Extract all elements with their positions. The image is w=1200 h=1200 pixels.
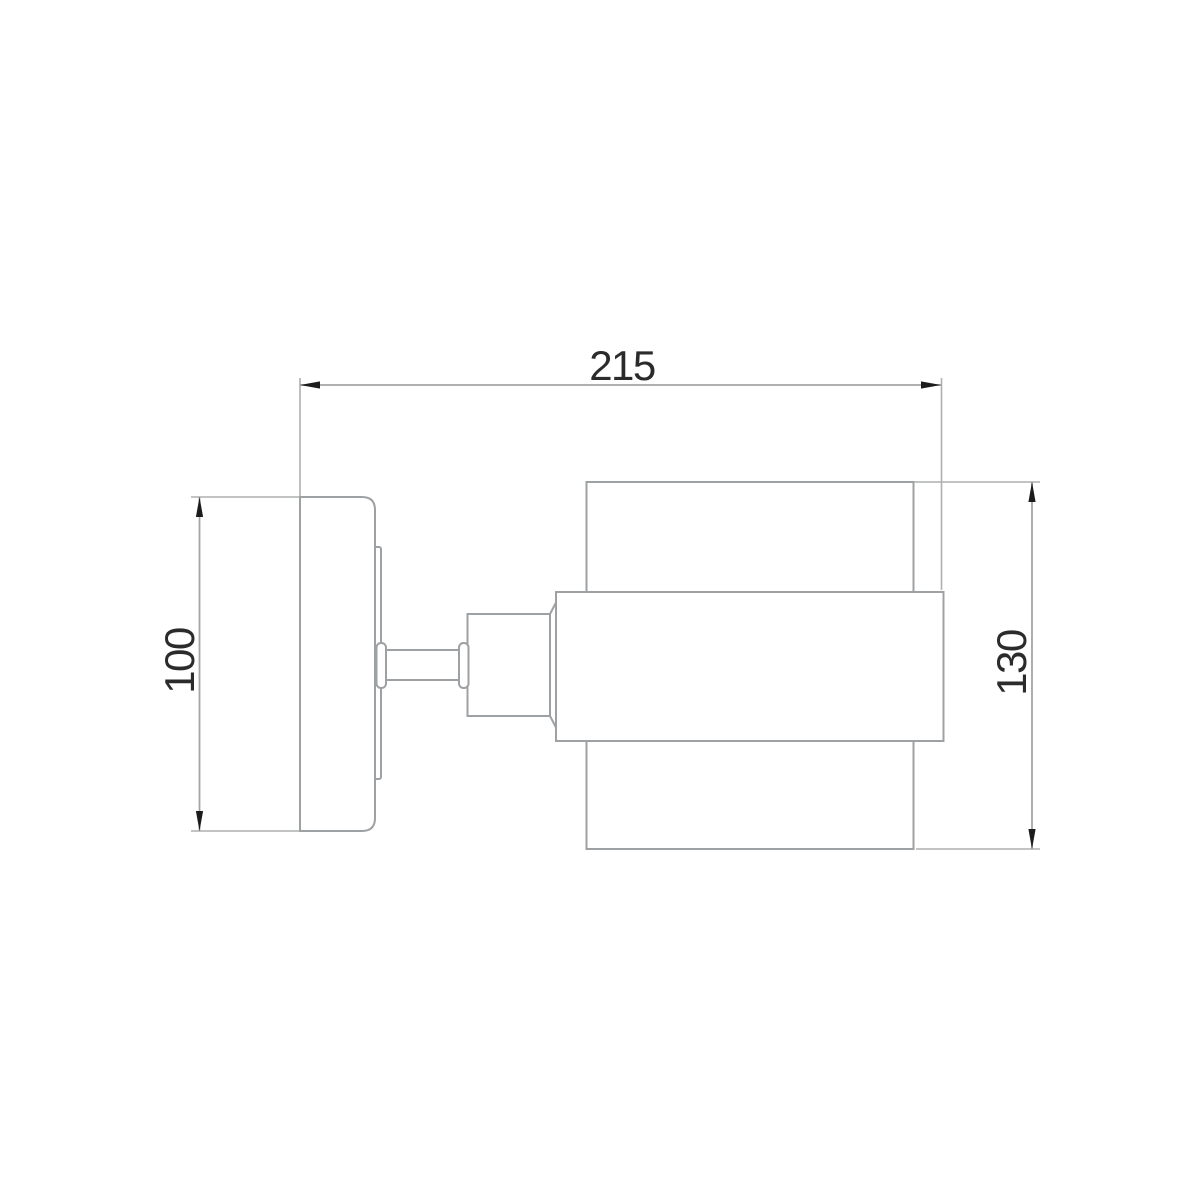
dimension-drawing: 215 100 130 [0,0,1200,1200]
arrowhead-right [921,381,941,388]
arrowhead-bottom [1028,829,1035,849]
socket-housing-outline [468,614,551,716]
dimension-label-overall-depth: 215 [589,342,655,389]
arrowhead-top [196,497,203,517]
wall-plate-outline [300,497,375,831]
dimension-label-shade-height: 130 [988,630,1035,696]
arrowhead-bottom [196,811,203,831]
arm-collar-outline [459,643,469,688]
drawing-canvas: 215 100 130 [0,0,1200,1200]
arrowhead-left [300,381,320,388]
shade-band-outline [556,592,944,741]
arrowhead-top [1028,482,1035,502]
arm-tube-outline [380,650,465,680]
dimension-label-backplate-height: 100 [156,628,203,694]
pivot-hub-outline [377,643,387,688]
dimension-backplate-height: 100 [156,497,299,831]
fixture-outline [300,482,944,849]
